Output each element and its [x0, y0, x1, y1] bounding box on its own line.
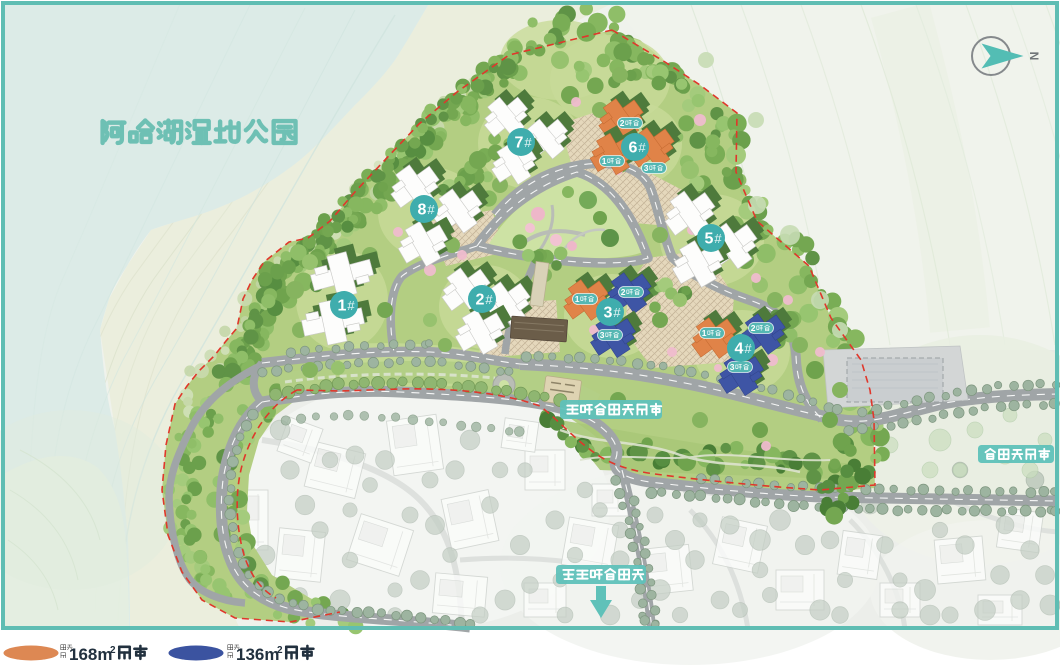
svg-text:7: 7 [515, 135, 524, 152]
svg-text:3: 3 [644, 163, 649, 173]
svg-text:#: # [613, 305, 621, 320]
svg-text:3: 3 [604, 305, 613, 322]
svg-text:2: 2 [110, 645, 116, 656]
svg-text:#: # [638, 140, 646, 155]
svg-text:6: 6 [629, 140, 638, 157]
svg-text:2: 2 [620, 118, 625, 128]
svg-text:3: 3 [730, 362, 735, 372]
svg-text:#: # [485, 292, 493, 307]
svg-text:#: # [427, 202, 435, 217]
svg-text:1: 1 [602, 156, 607, 166]
svg-text:1: 1 [702, 328, 707, 338]
svg-text:N: N [1027, 52, 1041, 61]
svg-text:5: 5 [705, 231, 714, 248]
svg-text:#: # [744, 341, 752, 356]
svg-text:4: 4 [735, 341, 744, 358]
svg-text:3: 3 [600, 330, 605, 340]
svg-text:1: 1 [575, 294, 580, 304]
svg-text:2: 2 [621, 287, 626, 297]
svg-text:136m: 136m [236, 645, 279, 664]
svg-text:2: 2 [751, 323, 756, 333]
svg-text:168m: 168m [69, 645, 112, 664]
svg-text:#: # [524, 135, 532, 150]
svg-text:1: 1 [338, 298, 347, 315]
svg-text:2: 2 [277, 645, 283, 656]
svg-text:8: 8 [418, 202, 427, 219]
svg-text:#: # [714, 231, 722, 246]
svg-text:#: # [347, 298, 355, 313]
svg-text:2: 2 [476, 292, 485, 309]
